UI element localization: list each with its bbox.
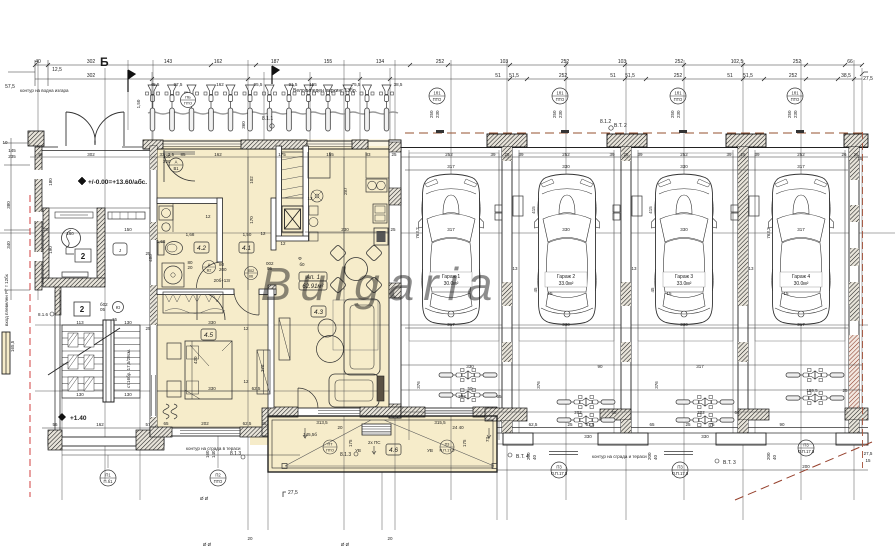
svg-text:33.0м²: 33.0м² — [677, 281, 692, 287]
svg-text:8.1.6: 8.1.6 — [38, 312, 49, 317]
svg-text:160: 160 — [66, 231, 74, 236]
svg-text:П1: П1 — [105, 473, 111, 478]
svg-text:230: 230 — [793, 110, 798, 118]
svg-text:8.1.2: 8.1.2 — [600, 119, 611, 125]
svg-text:45: 45 — [533, 287, 538, 293]
svg-text:61,5: 61,5 — [586, 422, 595, 427]
svg-text:контур на сграда и тераси: контур на сграда и тераси — [592, 454, 647, 459]
svg-text:40: 40 — [37, 152, 43, 157]
svg-text:162: 162 — [96, 422, 104, 427]
svg-text:415: 415 — [648, 206, 653, 214]
svg-text:4.5: 4.5 — [204, 332, 213, 339]
svg-text:252: 252 — [561, 59, 570, 65]
svg-text:контур на сграда в тераси: контур на сграда в тераси — [186, 446, 241, 451]
svg-text:175: 175 — [278, 152, 286, 157]
svg-text:50: 50 — [467, 386, 473, 391]
svg-text:25: 25 — [391, 152, 397, 157]
svg-text:143: 143 — [164, 59, 173, 65]
svg-text:252: 252 — [674, 73, 683, 79]
svg-text:Б: Б — [100, 55, 109, 69]
svg-text:340: 340 — [6, 241, 11, 249]
svg-text:1,68: 1,68 — [186, 232, 195, 237]
svg-text:П3: П3 — [556, 465, 562, 470]
svg-text:П.б1: П.б1 — [104, 479, 114, 484]
svg-text:250: 250 — [429, 110, 434, 118]
svg-text:330: 330 — [680, 164, 688, 169]
svg-text:ПТО: ПТО — [214, 479, 223, 484]
svg-text:302: 302 — [87, 152, 95, 157]
svg-text:103: 103 — [618, 59, 627, 65]
svg-text:УВ: УВ — [427, 448, 433, 453]
svg-text:+/-0.00=+13.60/абс.: +/-0.00=+13.60/абс. — [88, 178, 147, 186]
svg-text:376: 376 — [260, 364, 265, 372]
svg-text:12: 12 — [243, 379, 249, 384]
svg-text:200: 200 — [647, 452, 652, 460]
svg-text:90: 90 — [779, 422, 785, 427]
svg-text:8.1.3: 8.1.3 — [230, 451, 241, 457]
svg-text:51: 51 — [495, 73, 501, 79]
svg-text:330: 330 — [208, 320, 216, 325]
svg-text:25: 25 — [842, 388, 848, 393]
svg-text:1б1: 1б1 — [791, 91, 799, 96]
svg-text:175: 175 — [462, 439, 467, 447]
svg-text:155: 155 — [309, 82, 317, 87]
svg-text:J: J — [119, 248, 121, 253]
svg-text:15: 15 — [783, 291, 789, 296]
svg-text:12: 12 — [260, 231, 266, 236]
svg-text:контур на водна изгара: контур на водна изгара — [20, 88, 69, 93]
svg-text:8.1.3: 8.1.3 — [340, 452, 351, 458]
svg-text:25: 25 — [145, 326, 151, 331]
svg-text:39: 39 — [637, 152, 643, 157]
svg-text:+1.40: +1.40 — [70, 415, 87, 422]
svg-text:302: 302 — [87, 73, 96, 79]
svg-text:317: 317 — [696, 364, 704, 369]
svg-text:150: 150 — [124, 227, 132, 232]
svg-text:200: 200 — [526, 452, 531, 460]
svg-text:302: 302 — [87, 59, 96, 65]
svg-text:А: А — [175, 160, 178, 165]
svg-text:А: А — [208, 263, 211, 267]
svg-text:Гараж 3: Гараж 3 — [675, 274, 694, 280]
svg-text:27,5: 27,5 — [288, 490, 298, 496]
svg-text:190: 190 — [48, 246, 53, 254]
svg-text:2: 2 — [80, 305, 85, 314]
svg-text:12: 12 — [243, 326, 249, 331]
svg-text:330: 330 — [584, 434, 592, 439]
svg-text:187: 187 — [271, 59, 280, 65]
svg-text:252: 252 — [436, 59, 445, 65]
svg-text:4.3: 4.3 — [314, 309, 323, 316]
svg-text:25: 25 — [740, 152, 746, 157]
svg-text:230: 230 — [558, 110, 563, 118]
svg-text:12: 12 — [205, 214, 211, 219]
svg-text:91,5: 91,5 — [289, 82, 298, 87]
svg-text:40: 40 — [772, 454, 777, 460]
svg-text:20: 20 — [337, 425, 343, 430]
svg-text:12: 12 — [280, 241, 286, 246]
svg-text:162: 162 — [214, 152, 222, 157]
svg-text:160: 160 — [205, 450, 210, 458]
svg-text:П3: П3 — [803, 443, 809, 448]
svg-text:ПТО: ПТО — [433, 97, 442, 102]
svg-text:20б+13г: 20б+13г — [214, 278, 231, 283]
svg-text:130: 130 — [124, 392, 132, 397]
svg-text:165,5: 165,5 — [10, 340, 15, 352]
svg-text:763,2: 763,2 — [766, 227, 771, 239]
svg-text:1,50: 1,50 — [243, 232, 252, 237]
svg-text:1,68: 1,68 — [157, 239, 166, 244]
svg-text:252: 252 — [562, 152, 570, 157]
svg-text:235: 235 — [8, 154, 16, 159]
svg-text:ПБ: ПБ — [185, 95, 191, 100]
svg-text:05: 05 — [100, 307, 106, 312]
svg-text:П.П.17,5: П.П.17,5 — [551, 471, 568, 476]
svg-text:200: 200 — [219, 267, 227, 272]
svg-text:330: 330 — [208, 386, 216, 391]
svg-text:330: 330 — [701, 434, 709, 439]
svg-text:33: 33 — [159, 152, 165, 157]
svg-text:330: 330 — [466, 364, 474, 369]
svg-text:15: 15 — [666, 291, 672, 296]
svg-text:П.П.17,5: П.П.17,5 — [798, 449, 815, 454]
svg-text:97,5: 97,5 — [174, 82, 183, 87]
svg-text:2х ПС: 2х ПС — [368, 440, 381, 445]
svg-text:26: 26 — [841, 152, 847, 157]
svg-text:330: 330 — [562, 322, 570, 327]
svg-text:317: 317 — [447, 322, 455, 327]
svg-text:200: 200 — [802, 464, 810, 469]
svg-text:15: 15 — [547, 291, 553, 296]
svg-text:Ю: Ю — [116, 305, 121, 310]
svg-text:25: 25 — [567, 422, 573, 427]
svg-text:57,5: 57,5 — [5, 84, 15, 90]
svg-text:вход плевелен РГ т 12бх: вход плевелен РГ т 12бх — [4, 273, 9, 325]
svg-text:317: 317 — [797, 164, 805, 169]
svg-text:8.1.1: 8.1.1 — [262, 116, 273, 122]
svg-text:39: 39 — [754, 152, 760, 157]
svg-text:230: 230 — [676, 110, 681, 118]
svg-text:24 40: 24 40 — [452, 425, 464, 430]
svg-text:380: 380 — [6, 201, 11, 209]
svg-text:Ø Ø: Ø Ø — [203, 542, 212, 547]
svg-text:4.2: 4.2 — [197, 245, 206, 252]
svg-text:25: 25 — [390, 227, 396, 232]
svg-text:4.1: 4.1 — [242, 245, 251, 252]
svg-text:230: 230 — [435, 110, 440, 118]
svg-text:130: 130 — [124, 320, 132, 325]
svg-text:В1: В1 — [173, 166, 179, 171]
svg-text:25: 25 — [43, 227, 49, 232]
svg-text:П.П.17,5: П.П.17,5 — [672, 471, 689, 476]
svg-text:38,5: 38,5 — [841, 73, 851, 79]
svg-text:13: 13 — [512, 266, 518, 271]
svg-text:2,5: 2,5 — [168, 152, 175, 157]
svg-text:П.П.17,5: П.П.17,5 — [440, 449, 455, 453]
svg-text:330: 330 — [680, 322, 688, 327]
svg-text:ПТ: ПТ — [327, 443, 333, 447]
svg-text:27,5: 27,5 — [863, 76, 873, 82]
svg-text:62,5: 62,5 — [252, 386, 261, 391]
svg-text:140: 140 — [211, 450, 216, 458]
svg-text:25: 25 — [685, 422, 691, 427]
svg-text:1б1: 1б1 — [433, 91, 441, 96]
svg-text:65: 65 — [163, 421, 169, 426]
svg-text:113: 113 — [76, 320, 84, 325]
svg-text:12,5: 12,5 — [52, 67, 62, 73]
svg-text:ПТО: ПТО — [556, 97, 565, 102]
svg-text:45,5: 45,5 — [151, 82, 160, 87]
svg-text:П3: П3 — [445, 443, 450, 447]
svg-text:П3: П3 — [677, 465, 683, 470]
svg-text:ПТО: ПТО — [184, 101, 192, 106]
svg-text:Гараж 4: Гараж 4 — [792, 274, 811, 280]
svg-text:313,5: 313,5 — [316, 420, 328, 425]
svg-text:75,5: 75,5 — [352, 82, 361, 87]
svg-text:4.6: 4.6 — [389, 447, 398, 454]
svg-text:103: 103 — [500, 59, 509, 65]
svg-text:75: 75 — [709, 422, 715, 427]
svg-text:б02: б02 — [248, 269, 254, 273]
svg-text:763,2: 763,2 — [415, 227, 420, 239]
svg-text:65: 65 — [611, 410, 617, 415]
svg-text:330: 330 — [680, 227, 688, 232]
svg-text:162: 162 — [216, 82, 224, 87]
svg-text:ст.16бр. 17,5/28см.: ст.16бр. 17,5/28см. — [126, 349, 131, 388]
svg-text:250: 250 — [670, 110, 675, 118]
svg-text:315,5: 315,5 — [434, 420, 446, 425]
svg-text:287: 287 — [343, 187, 348, 195]
svg-text:200: 200 — [163, 159, 171, 164]
svg-text:252: 252 — [680, 152, 688, 157]
svg-text:13: 13 — [748, 266, 754, 271]
svg-text:317: 317 — [447, 164, 455, 169]
svg-text:Велосипеден паркинг 13бр.: Велосипеден паркинг 13бр. — [293, 88, 357, 94]
svg-text:252: 252 — [793, 59, 802, 65]
svg-text:56: 56 — [52, 422, 58, 427]
svg-text:25: 25 — [504, 152, 510, 157]
svg-text:102: 102 — [249, 176, 254, 184]
svg-text:317: 317 — [797, 227, 805, 232]
svg-text:20: 20 — [187, 265, 193, 270]
svg-text:85: 85 — [180, 152, 186, 157]
svg-text:1б1: 1б1 — [556, 91, 564, 96]
svg-text:250: 250 — [787, 110, 792, 118]
svg-text:51: 51 — [610, 73, 616, 79]
svg-text:66: 66 — [734, 410, 740, 415]
svg-text:252: 252 — [789, 73, 798, 79]
svg-text:06: 06 — [249, 275, 253, 279]
svg-text:252: 252 — [559, 73, 568, 79]
svg-text:65: 65 — [496, 394, 502, 399]
svg-text:252: 252 — [797, 152, 805, 157]
svg-text:317: 317 — [797, 322, 805, 327]
svg-text:27,5: 27,5 — [864, 451, 873, 456]
svg-text:180: 180 — [48, 178, 53, 186]
svg-text:Гараж 2: Гараж 2 — [557, 274, 576, 280]
svg-text:415: 415 — [531, 206, 536, 214]
svg-text:П2: П2 — [215, 473, 221, 478]
svg-text:95,5: 95,5 — [254, 82, 263, 87]
svg-text:В.Т. 3: В.Т. 3 — [723, 460, 736, 466]
svg-text:20: 20 — [247, 536, 253, 541]
svg-text:10: 10 — [2, 140, 8, 145]
svg-text:Ø Ø: Ø Ø — [341, 542, 350, 547]
svg-text:488: 488 — [148, 254, 153, 262]
svg-text:66: 66 — [847, 59, 853, 65]
svg-text:Bulgaria: Bulgaria — [261, 258, 502, 310]
svg-text:25: 25 — [623, 152, 629, 157]
svg-text:155: 155 — [324, 59, 333, 65]
svg-text:40: 40 — [653, 454, 658, 460]
svg-text:170: 170 — [249, 216, 254, 224]
svg-text:39: 39 — [490, 152, 496, 157]
svg-text:199,5: 199,5 — [806, 388, 818, 393]
svg-text:250: 250 — [552, 110, 557, 118]
svg-text:12: 12 — [307, 196, 313, 201]
svg-text:202: 202 — [201, 421, 209, 426]
svg-text:45: 45 — [650, 287, 655, 293]
svg-text:376: 376 — [416, 381, 421, 389]
svg-text:ПТО: ПТО — [674, 97, 683, 102]
svg-text:130: 130 — [76, 392, 84, 397]
svg-text:В.Т. 2: В.Т. 2 — [614, 123, 627, 129]
svg-text:1б1: 1б1 — [674, 91, 682, 96]
svg-text:В2: В2 — [207, 269, 212, 273]
svg-text:62,5: 62,5 — [529, 422, 538, 427]
svg-text:317: 317 — [447, 227, 455, 232]
svg-text:2: 2 — [81, 252, 86, 261]
svg-text:62,5: 62,5 — [243, 421, 252, 426]
svg-text:39: 39 — [726, 152, 732, 157]
svg-text:39: 39 — [518, 152, 524, 157]
svg-text:51: 51 — [727, 73, 733, 79]
svg-text:33.0м²: 33.0м² — [559, 281, 574, 287]
svg-text:134: 134 — [376, 59, 385, 65]
svg-text:51,5: 51,5 — [625, 73, 635, 79]
svg-text:Ø Ø: Ø Ø — [200, 496, 209, 501]
svg-text:162: 162 — [214, 59, 223, 65]
svg-text:1,50: 1,50 — [136, 99, 141, 108]
svg-text:30.0м²: 30.0м² — [794, 281, 809, 287]
svg-text:38,5: 38,5 — [394, 82, 403, 87]
svg-text:155: 155 — [326, 152, 334, 157]
svg-text:20: 20 — [387, 536, 393, 541]
svg-text:202: 202 — [574, 410, 582, 415]
svg-text:252: 252 — [445, 152, 453, 157]
svg-text:90: 90 — [597, 364, 603, 369]
svg-text:51,5: 51,5 — [743, 73, 753, 79]
svg-text:252: 252 — [675, 59, 684, 65]
svg-text:376: 376 — [536, 381, 541, 389]
svg-text:420: 420 — [193, 356, 198, 364]
svg-text:330: 330 — [562, 227, 570, 232]
svg-text:13: 13 — [631, 266, 637, 271]
svg-text:39: 39 — [609, 152, 615, 157]
svg-text:330: 330 — [562, 164, 570, 169]
svg-text:ПТО: ПТО — [791, 97, 800, 102]
svg-text:25: 25 — [261, 421, 267, 426]
svg-text:360: 360 — [241, 121, 246, 129]
svg-text:175: 175 — [348, 439, 353, 447]
svg-text:102,5: 102,5 — [731, 59, 744, 65]
svg-text:15: 15 — [865, 458, 871, 463]
svg-text:ПТО: ПТО — [326, 449, 334, 453]
svg-text:40: 40 — [532, 454, 537, 460]
svg-text:202: 202 — [697, 410, 705, 415]
svg-text:65: 65 — [649, 422, 655, 427]
svg-text:202: 202 — [458, 394, 466, 399]
svg-text:83: 83 — [365, 152, 371, 157]
svg-text:376: 376 — [654, 381, 659, 389]
svg-text:145: 145 — [8, 148, 16, 153]
svg-text:200: 200 — [766, 452, 771, 460]
svg-text:230: 230 — [341, 227, 349, 232]
